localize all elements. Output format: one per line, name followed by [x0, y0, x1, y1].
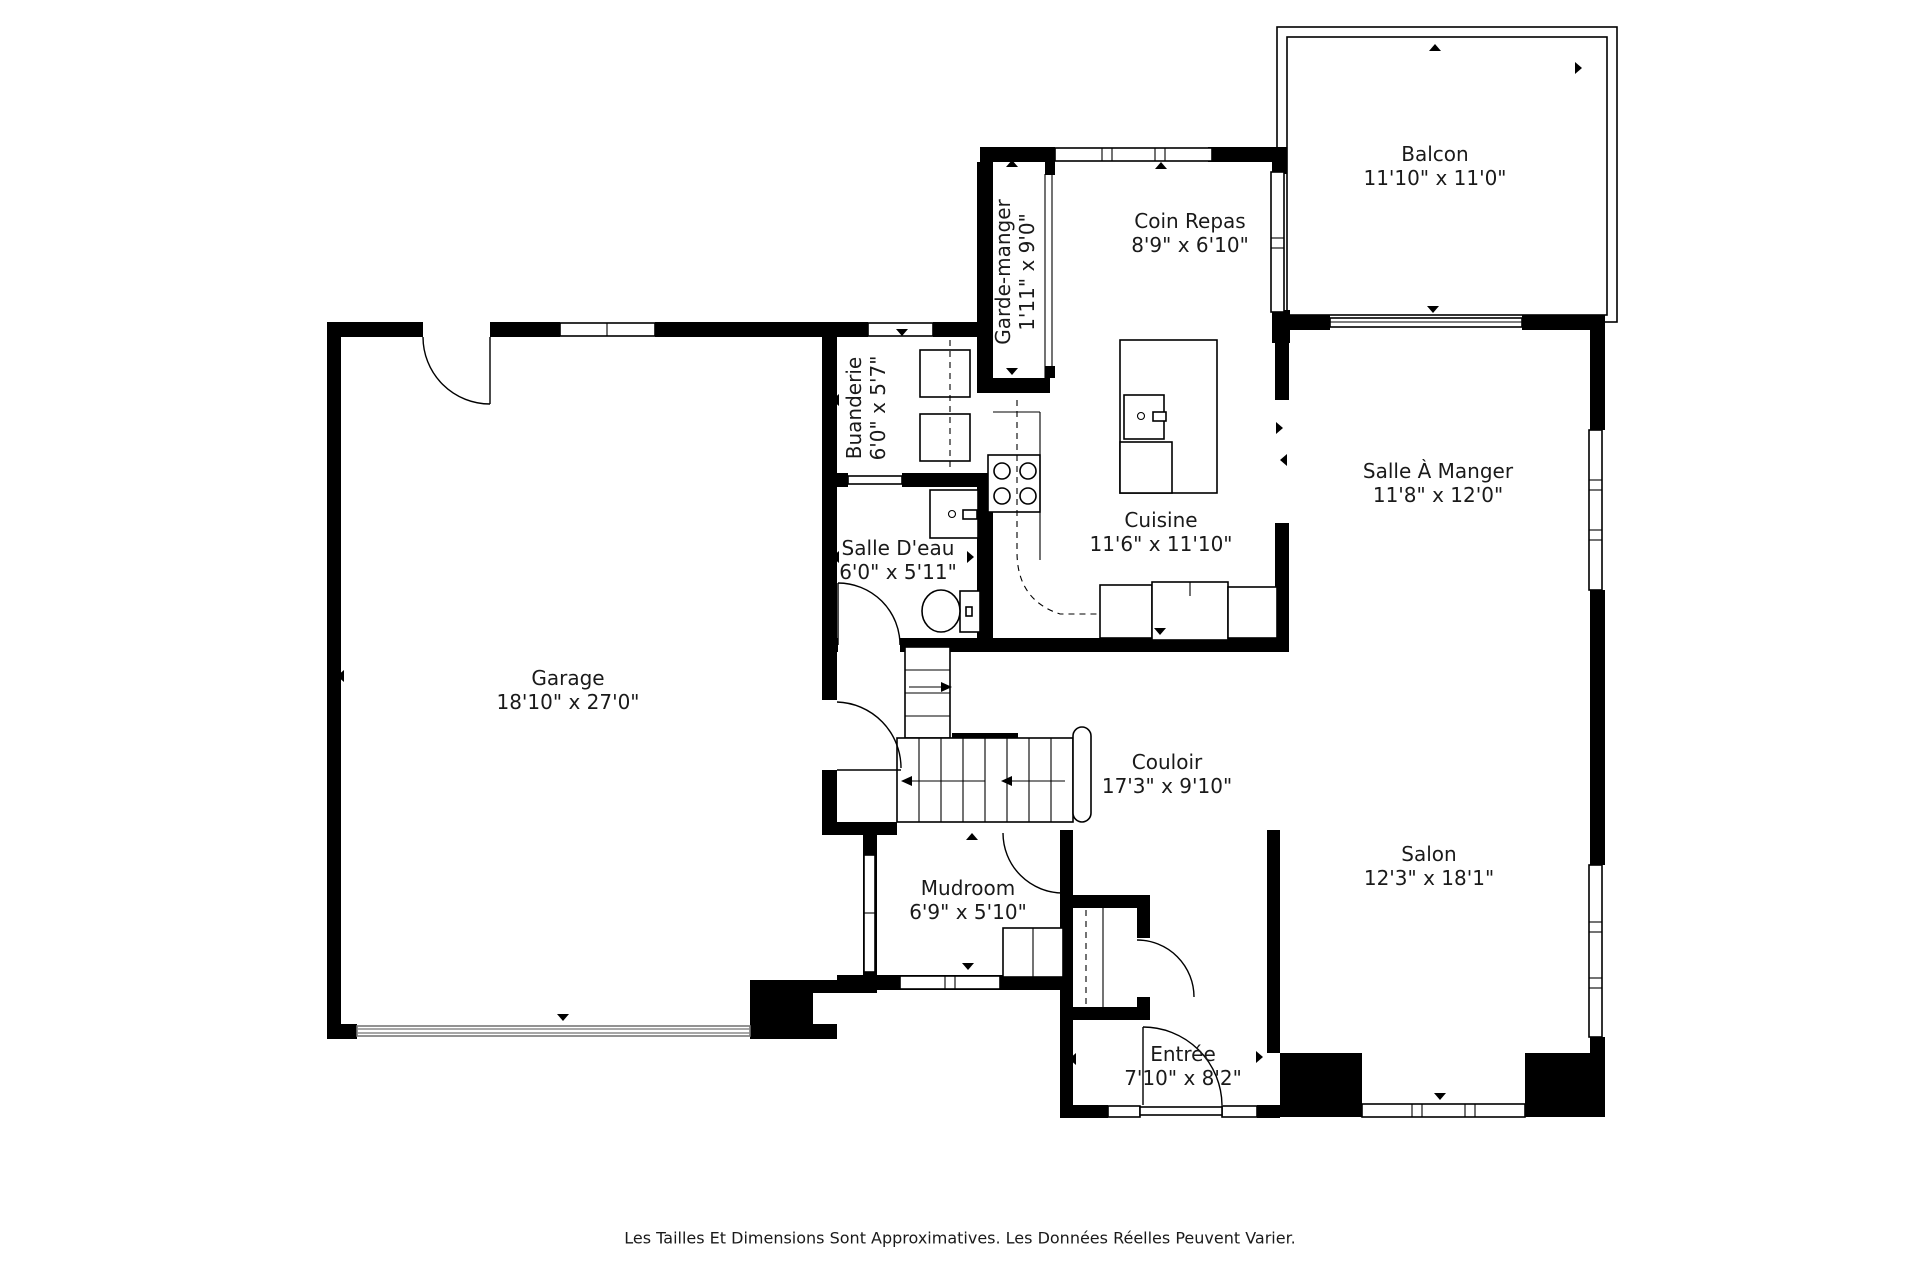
coin-repas-side-window	[1271, 172, 1284, 312]
garage-entry-door	[423, 337, 490, 404]
laundry-cased-opening	[848, 476, 902, 484]
disclaimer-text: Les Tailles Et Dimensions Sont Approxima…	[624, 1229, 1296, 1248]
room-label-couloir: Couloir17'3" x 9'10"	[1102, 750, 1232, 798]
room-label-coin-repas: Coin Repas8'9" x 6'10"	[1131, 209, 1249, 257]
dimension-markers	[337, 44, 1582, 1100]
mudroom-side-window	[864, 855, 875, 972]
entry-sidelight-right	[1222, 1106, 1257, 1117]
mudroom-bottom-window	[900, 976, 1000, 989]
room-label-balcon: Balcon11'10" x 11'0"	[1363, 142, 1506, 190]
toilet	[922, 590, 980, 632]
salon-side-window	[1589, 865, 1602, 1037]
garage-window	[560, 323, 655, 336]
room-label-salon: Salon12'3" x 18'1"	[1364, 842, 1494, 890]
room-label-buanderie: Buanderie6'0" x 5'7"	[842, 356, 890, 461]
closet-door	[1137, 940, 1194, 997]
dryer	[920, 414, 970, 461]
powder-sink	[930, 490, 978, 538]
washer	[920, 350, 970, 397]
kitchen-island	[1120, 340, 1217, 493]
salon-bottom-window	[1362, 1104, 1525, 1117]
stove	[988, 455, 1040, 512]
room-label-entree: Entrée7'10" x 8'2"	[1124, 1042, 1242, 1090]
dining-window	[1589, 430, 1602, 590]
balcony-sliding-door	[1330, 318, 1522, 327]
room-label-cuisine: Cuisine11'6" x 11'10"	[1089, 508, 1232, 556]
entry-sidelight-left	[1108, 1106, 1140, 1117]
room-label-salle-a-manger: Salle À Manger11'8" x 12'0"	[1363, 459, 1513, 507]
room-label-garde-manger: Garde-manger1'11" x 9'0"	[991, 199, 1039, 344]
pantry-shelving	[1045, 162, 1055, 378]
floor-plan-drawing	[0, 0, 1920, 1280]
garage-door	[357, 1026, 750, 1036]
room-label-salle-deau: Salle D'eau6'0" x 5'11"	[839, 536, 957, 584]
powder-room-door	[838, 583, 900, 645]
mudroom-bench	[1003, 928, 1063, 977]
coin-repas-top-window	[1055, 148, 1212, 161]
floor-plan: Balcon11'10" x 11'0" Coin Repas8'9" x 6'…	[0, 0, 1920, 1280]
stair-banister	[1073, 727, 1091, 822]
room-label-mudroom: Mudroom6'9" x 5'10"	[909, 876, 1027, 924]
garage-hall-door	[837, 702, 901, 770]
room-label-garage: Garage18'10" x 27'0"	[496, 666, 639, 714]
entry-threshold	[1140, 1107, 1222, 1115]
closet-interior	[1086, 908, 1103, 1007]
